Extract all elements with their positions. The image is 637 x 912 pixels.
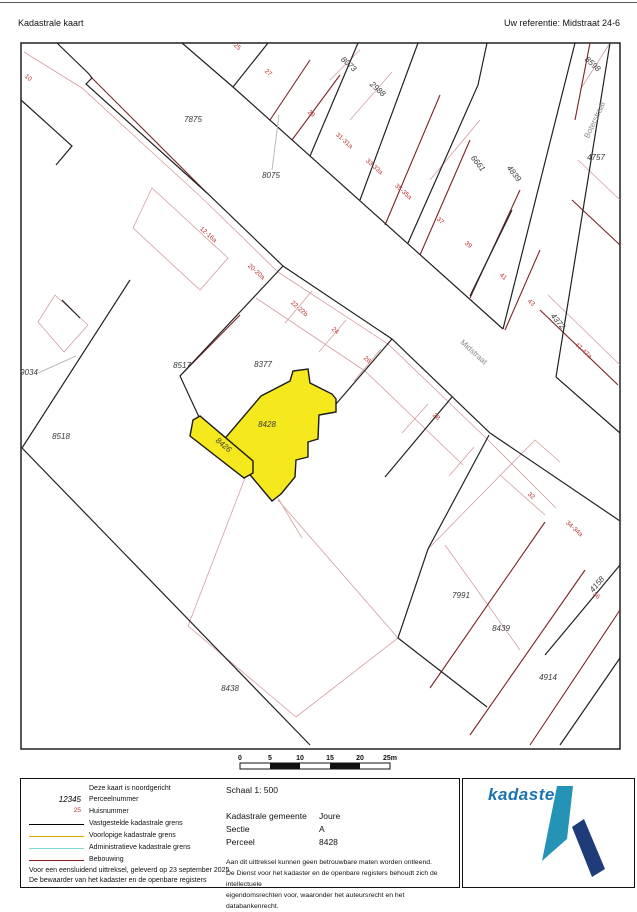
- legend-label: Administratieve kadastrale grens: [89, 844, 191, 851]
- parcel-number: 8517: [173, 361, 191, 370]
- parcel-number: 7991: [452, 591, 470, 600]
- detail-key: Kadastrale gemeente: [226, 811, 319, 821]
- detail-key: Perceel: [226, 837, 319, 847]
- parcel-number: 4757: [587, 153, 605, 162]
- legend-note-1: Voor een eensluidend uittreksel, gelever…: [29, 867, 229, 874]
- detail-rows: Kadastrale gemeenteJoureSectieAPerceel84…: [226, 811, 453, 850]
- kadaster-logo-box: kadaster: [462, 778, 635, 888]
- legend-label: Perceelnummer: [89, 796, 138, 803]
- parcel-number: 8438: [221, 684, 239, 693]
- legend-symbol: 12345: [21, 795, 81, 804]
- disclaimer: Aan dit uittreksel kunnen geen betrouwba…: [226, 857, 455, 912]
- scale-text: Schaal 1: 500: [226, 785, 278, 795]
- scale-tick: 10: [296, 755, 304, 762]
- logo-pen-shape: [542, 786, 573, 861]
- scale-tick-labels: 0510152025m: [238, 755, 397, 762]
- legend-note-2: De bewaarder van het kadaster en de open…: [29, 877, 206, 884]
- parcel-number: 4914: [539, 673, 557, 682]
- scale-tick: 15: [326, 755, 334, 762]
- cadastral-map: 7875807580732988666148398598475743728517…: [0, 0, 637, 892]
- legend-label: Huisnummer: [89, 808, 129, 815]
- legend-item: 12345Perceelnummer: [21, 796, 459, 807]
- disclaimer-line: De Dienst voor het kadaster en de openba…: [226, 868, 455, 890]
- parcel-number: 9034: [20, 368, 38, 377]
- north-note: Deze kaart is noordgericht: [89, 785, 171, 792]
- parcel-number: 8439: [492, 624, 510, 633]
- parcel-number: 7875: [184, 115, 202, 124]
- parcel-number: 8075: [262, 171, 280, 180]
- scale-tick: 20: [356, 755, 364, 762]
- legend-symbol: 25: [21, 807, 81, 814]
- legend-line-swatch: [29, 848, 84, 849]
- detail-value: A: [319, 824, 325, 834]
- detail-value: Joure: [319, 811, 340, 821]
- scale-tick: 5: [268, 755, 272, 762]
- logo-leg-shape: [572, 819, 605, 877]
- legend-line-swatch: [29, 824, 84, 825]
- scale-bar: [240, 763, 390, 769]
- parcel-number: 8377: [254, 360, 272, 369]
- parcel-number: 8518: [52, 432, 70, 441]
- disclaimer-line: Aan dit uittreksel kunnen geen betrouwba…: [226, 857, 455, 868]
- page: { "header": { "title": "Kadastrale kaart…: [0, 0, 637, 892]
- legend-label: Voorlopige kadastrale grens: [89, 832, 176, 839]
- legend-box: Deze kaart is noordgericht 12345Perceeln…: [20, 778, 460, 888]
- detail-row: SectieA: [226, 824, 453, 837]
- legend-line-swatch: [29, 860, 84, 861]
- parcel-number: 8428: [258, 420, 276, 429]
- detail-row: Perceel8428: [226, 837, 453, 850]
- detail-key: Sectie: [226, 824, 319, 834]
- disclaimer-line: eigendomsrechten voor, waaronder het aut…: [226, 890, 455, 912]
- legend-line-swatch: [29, 836, 84, 837]
- detail-value: 8428: [319, 837, 338, 847]
- legend-label: Bebouwing: [89, 856, 124, 863]
- scale-tick: 25m: [383, 755, 397, 762]
- detail-row: Kadastrale gemeenteJoure: [226, 811, 453, 824]
- scale-tick: 0: [238, 755, 242, 762]
- kadaster-logo-mark: [463, 779, 634, 886]
- legend-label: Vastgestelde kadastrale grens: [89, 820, 183, 827]
